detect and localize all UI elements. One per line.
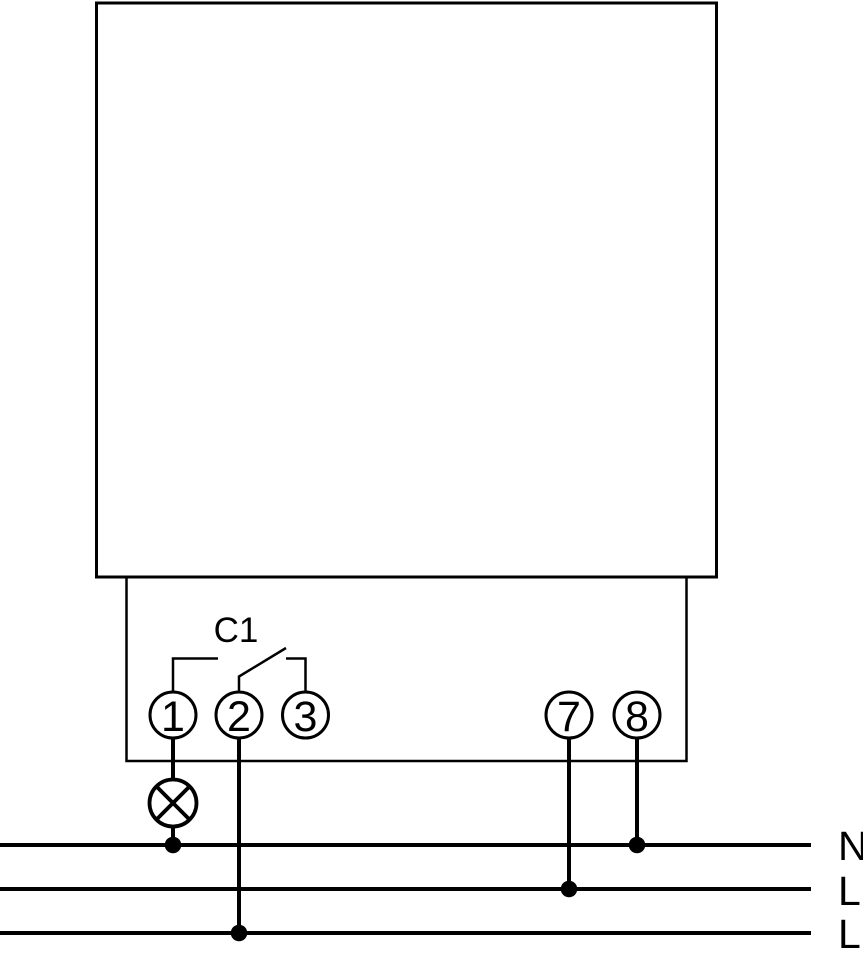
switch-blade — [239, 648, 286, 692]
device-outline — [97, 3, 717, 577]
terminal-8: 8 — [614, 692, 660, 741]
terminal-1: 1 — [150, 692, 196, 741]
junction-dot — [629, 837, 646, 854]
junction-dot — [561, 881, 578, 898]
lamp-icon — [150, 780, 197, 827]
terminal-number: 3 — [294, 693, 318, 741]
terminal-number: 2 — [227, 693, 251, 741]
bus-labels: N L L — [838, 823, 863, 957]
terminal-7: 7 — [546, 692, 592, 741]
junction-dot — [231, 925, 248, 942]
schematic-page: C1 1 — [0, 0, 863, 960]
bus-label-live-1: L — [838, 868, 861, 914]
wires — [173, 736, 637, 933]
switch-fixed-contact-right — [286, 659, 306, 693]
terminals: 1 2 3 7 8 — [150, 692, 660, 741]
bus-label-neutral: N — [838, 823, 863, 869]
contact-channel-label: C1 — [214, 611, 259, 650]
terminal-block-outline — [127, 577, 687, 761]
switch-fixed-contact-left — [173, 659, 218, 693]
terminal-number: 1 — [161, 693, 185, 741]
changeover-switch-icon — [173, 648, 306, 692]
wiring-diagram: C1 1 — [0, 0, 863, 960]
bus-label-live-2: L — [838, 911, 861, 957]
terminal-3: 3 — [283, 692, 329, 741]
terminal-2: 2 — [216, 692, 262, 741]
terminal-number: 8 — [625, 693, 649, 741]
terminal-number: 7 — [557, 693, 581, 741]
diagram-root: C1 1 — [0, 3, 863, 957]
bus-lines — [0, 845, 811, 933]
junction-dot — [165, 837, 182, 854]
